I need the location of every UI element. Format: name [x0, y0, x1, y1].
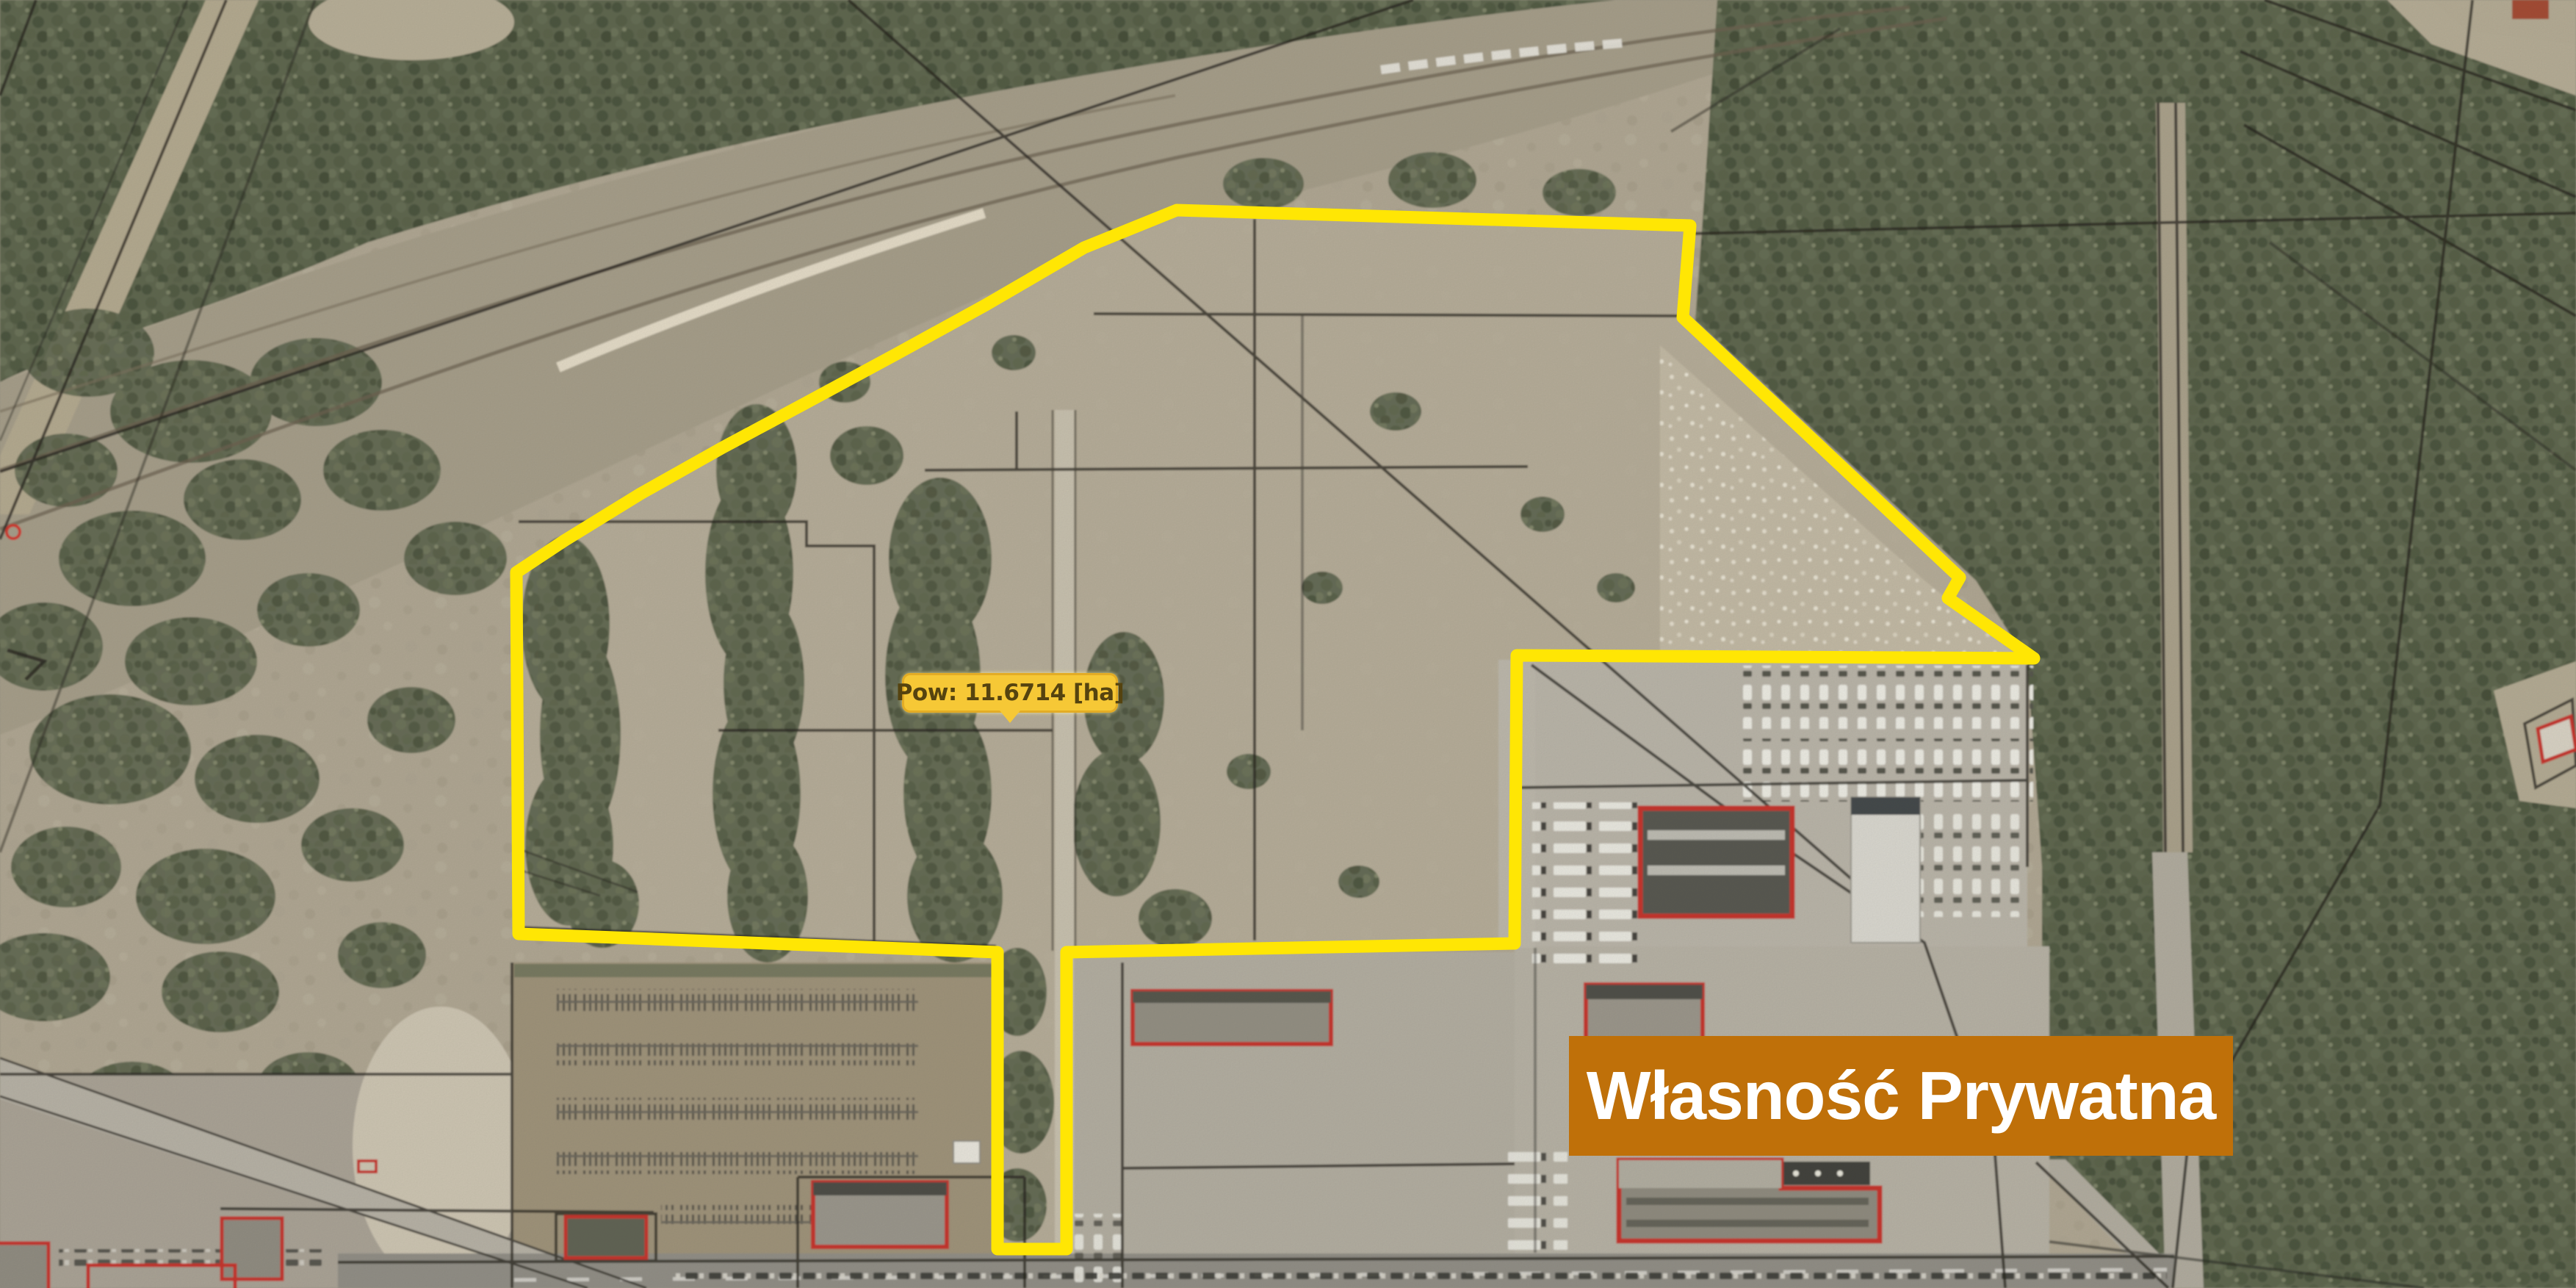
ownership-banner: Własność Prywatna	[1569, 1036, 2233, 1156]
tooltip-pointer-icon	[1000, 710, 1020, 723]
area-measurement-tooltip: Pow: 11.6714 [ha]	[902, 673, 1118, 713]
area-measurement-label: Pow: 11.6714 [ha]	[896, 680, 1125, 706]
ownership-banner-label: Własność Prywatna	[1587, 1057, 2215, 1135]
map-viewport[interactable]: Pow: 11.6714 [ha] Własność Prywatna	[0, 0, 2576, 1288]
